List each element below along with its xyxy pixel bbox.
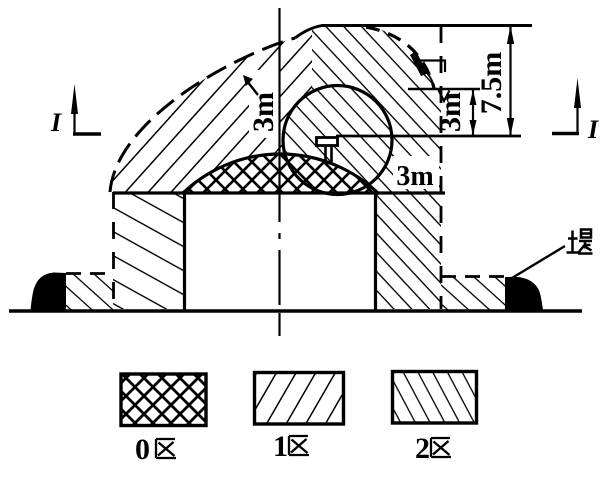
svg-text:7.5m: 7.5m: [475, 52, 508, 115]
svg-text:3m: 3m: [396, 161, 433, 192]
svg-text:3m: 3m: [247, 92, 280, 132]
svg-text:I: I: [587, 115, 599, 144]
svg-text:3m: 3m: [434, 92, 467, 132]
svg-text:I: I: [50, 108, 62, 137]
svg-text:0: 0: [135, 433, 150, 466]
svg-text:2: 2: [415, 432, 430, 465]
svg-text:1: 1: [273, 430, 288, 463]
